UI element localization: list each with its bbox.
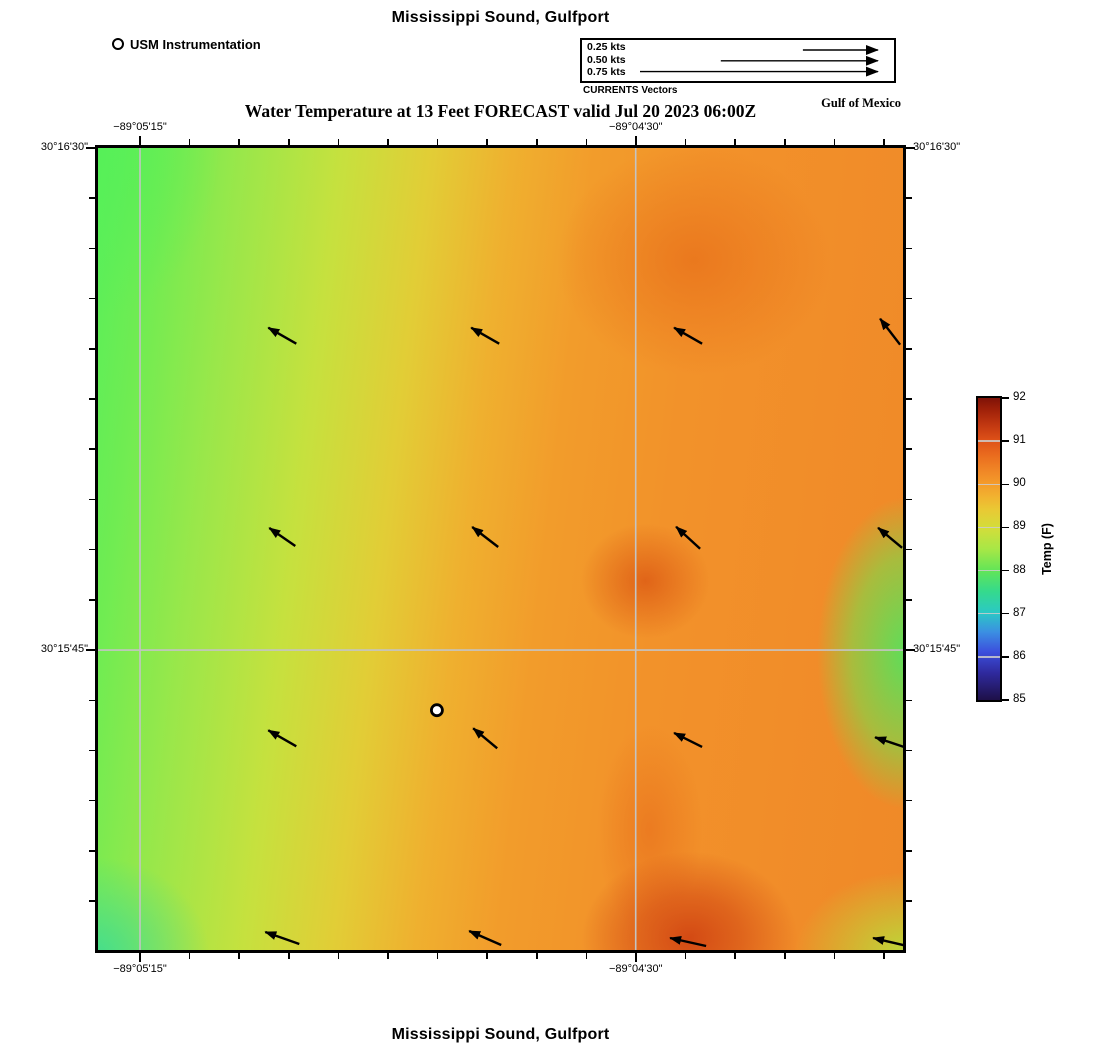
y-axis-tick	[906, 850, 912, 852]
x-axis-tick	[834, 139, 836, 145]
x-axis-tick	[734, 953, 736, 959]
colorbar-tick	[1002, 699, 1009, 701]
x-axis-tick	[784, 953, 786, 959]
x-axis-tick	[784, 139, 786, 145]
y-axis-tick	[906, 448, 912, 450]
colorbar-tick-label: 90	[1013, 477, 1043, 489]
y-axis-tick	[906, 248, 912, 250]
y-axis-tick	[89, 398, 95, 400]
x-axis-tick	[586, 139, 588, 145]
colorbar-tick-label: 87	[1013, 607, 1043, 619]
page-title: Mississippi Sound, Gulfport	[98, 9, 903, 27]
x-axis-tick	[387, 953, 389, 959]
currents-scale-caption: CURRENTS Vectors	[583, 85, 677, 96]
colorbar-tick-label: 88	[1013, 564, 1043, 576]
x-axis-tick	[486, 953, 488, 959]
x-axis-tick	[635, 953, 637, 962]
instrument-legend: USM Instrumentation	[112, 36, 261, 52]
x-axis-tick	[288, 139, 290, 145]
colorbar-tick	[1002, 397, 1009, 399]
gulf-of-mexico-label: Gulf of Mexico	[700, 96, 901, 111]
x-axis-tick-label: −89°04'30"	[566, 121, 706, 133]
y-axis-tick	[906, 750, 912, 752]
x-axis-tick	[238, 953, 240, 959]
y-axis-tick	[89, 850, 95, 852]
x-axis-tick	[189, 139, 191, 145]
y-axis-tick	[906, 348, 912, 350]
y-axis-tick	[89, 298, 95, 300]
x-axis-tick	[586, 953, 588, 959]
x-axis-tick	[288, 953, 290, 959]
x-axis-tick	[437, 139, 439, 145]
x-axis-tick	[635, 136, 637, 145]
colorbar-tick-label: 85	[1013, 693, 1043, 705]
instrument-legend-label: USM Instrumentation	[130, 37, 261, 52]
y-axis-tick	[906, 549, 912, 551]
colorbar-tick	[1002, 613, 1009, 615]
x-axis-tick	[685, 953, 687, 959]
station-marker-icon	[112, 38, 124, 50]
colorbar-tick	[1002, 570, 1009, 572]
y-axis-tick	[89, 499, 95, 501]
y-axis-tick	[89, 448, 95, 450]
colorbar-gridline	[978, 527, 1000, 529]
x-axis-tick-label: −89°05'15"	[70, 121, 210, 133]
x-axis-tick	[139, 953, 141, 962]
y-axis-tick	[89, 750, 95, 752]
y-axis-tick	[906, 900, 912, 902]
colorbar-tick	[1002, 484, 1009, 486]
y-axis-tick	[906, 197, 912, 199]
x-axis-tick	[883, 139, 885, 145]
colorbar-gridline	[978, 656, 1000, 658]
y-axis-tick	[906, 499, 912, 501]
y-axis-tick	[906, 700, 912, 702]
forecast-plot-page: Mississippi Sound, Gulfport USM Instrume…	[0, 0, 1100, 1050]
x-axis-tick	[834, 953, 836, 959]
map-frame	[95, 145, 906, 953]
y-axis-tick	[89, 348, 95, 350]
x-axis-tick	[437, 953, 439, 959]
y-axis-tick	[906, 599, 912, 601]
y-axis-tick	[89, 700, 95, 702]
x-axis-tick	[536, 953, 538, 959]
y-axis-tick	[89, 599, 95, 601]
y-axis-tick	[89, 197, 95, 199]
x-axis-tick	[139, 136, 141, 145]
x-axis-tick	[536, 139, 538, 145]
colorbar-tick-label: 92	[1013, 391, 1043, 403]
x-axis-tick	[734, 139, 736, 145]
colorbar-tick	[1002, 527, 1009, 529]
colorbar-gridline	[978, 484, 1000, 486]
x-axis-tick	[238, 139, 240, 145]
x-axis-tick	[685, 139, 687, 145]
colorbar-tick-label: 86	[1013, 650, 1043, 662]
colorbar-gridline	[978, 440, 1000, 442]
y-axis-tick	[89, 800, 95, 802]
y-axis-tick	[906, 398, 912, 400]
x-axis-tick	[883, 953, 885, 959]
x-axis-tick	[338, 953, 340, 959]
x-axis-tick	[189, 953, 191, 959]
currents-scale-box: 0.25 kts 0.50 kts 0.75 kts	[580, 38, 896, 83]
x-axis-tick-label: −89°05'15"	[70, 963, 210, 975]
colorbar-tick-label: 91	[1013, 434, 1043, 446]
y-axis-tick-label: 30°15'45"	[913, 643, 1003, 655]
y-axis-tick	[89, 549, 95, 551]
vector-scale-arrows-icon	[582, 40, 894, 81]
colorbar-gridline	[978, 613, 1000, 615]
bottom-title: Mississippi Sound, Gulfport	[98, 1026, 903, 1044]
y-axis-tick	[89, 900, 95, 902]
colorbar-tick-label: 89	[1013, 520, 1043, 532]
x-axis-tick	[486, 139, 488, 145]
colorbar-tick	[1002, 656, 1009, 658]
x-axis-tick	[387, 139, 389, 145]
y-axis-tick-label: 30°16'30"	[8, 141, 88, 153]
current-vectors-overlay	[98, 148, 903, 950]
y-axis-tick-label: 30°15'45"	[8, 643, 88, 655]
colorbar-tick	[1002, 440, 1009, 442]
y-axis-tick-label: 30°16'30"	[913, 141, 1003, 153]
x-axis-tick-label: −89°04'30"	[566, 963, 706, 975]
y-axis-tick	[89, 248, 95, 250]
x-axis-tick	[338, 139, 340, 145]
y-axis-tick	[906, 800, 912, 802]
y-axis-tick	[906, 298, 912, 300]
colorbar-gridline	[978, 570, 1000, 572]
